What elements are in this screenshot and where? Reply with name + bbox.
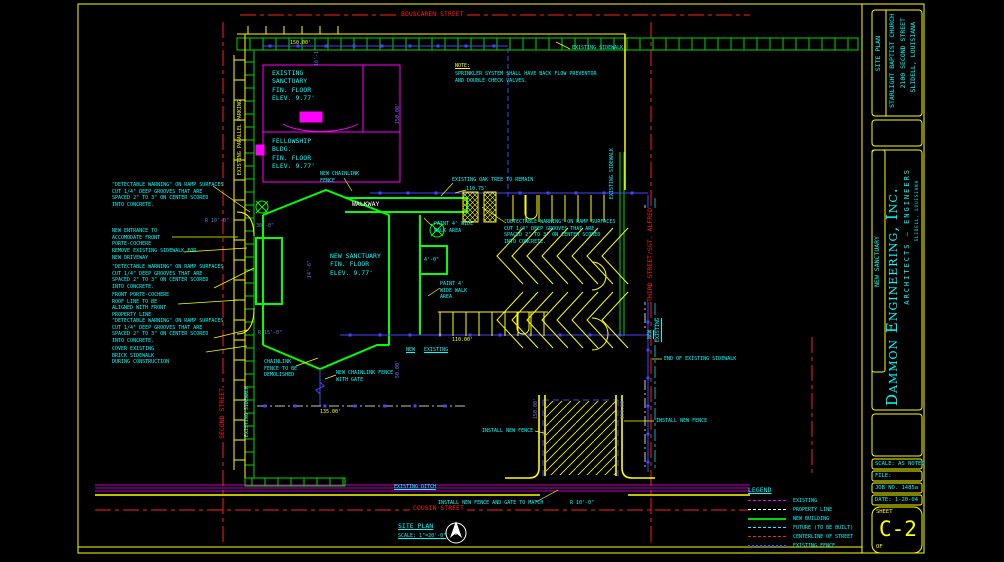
siteplan-scale: SCALE: 1"=20'-0": [398, 533, 446, 540]
cad-site-plan-sheet: BOUSCAREN STREET SECOND STREET COUSIN ST…: [0, 0, 1004, 562]
dim-14-6: 14'-6": [307, 260, 314, 278]
dim-150-top: 150.00': [290, 40, 311, 47]
titleblock-file: FILE:: [875, 473, 892, 480]
dim-30: 30'-0": [256, 223, 274, 230]
titleblock-firm-address: SLIDELL, LOUISIANA: [914, 180, 919, 241]
legend-title: LEGEND: [748, 486, 853, 494]
titleblock-sheet-number: C-2: [879, 516, 917, 543]
dim-16-1: 16'-1": [314, 48, 321, 66]
callout-detectable-1: "DETECTABLE WARNING" ON RAMP SURFACES CU…: [112, 182, 223, 208]
titleblock-firm-name: Dammon Engineering, Inc.: [883, 152, 903, 406]
dim-135-bottom: 135.00': [320, 409, 341, 416]
label-existing-v: EXISTING: [655, 318, 662, 342]
note-title: NOTE:: [455, 63, 470, 70]
label-new-v: NEW: [647, 330, 654, 339]
callout-remove-sidewalk: REMOVE EXISTING SIDEWALK FOR NEW DRIVEWA…: [112, 248, 196, 261]
legend-item-centerline: CENTERLINE OF STREET: [748, 532, 853, 541]
titleblock-sheet-title: SITE PLAN: [874, 36, 882, 71]
dim-50: 50.00': [395, 360, 402, 378]
callout-front-porte: FRONT PORTE-COCHERE ROOF LINE TO BE ALIG…: [112, 292, 169, 318]
street-label-bouscaren: BOUSCAREN STREET: [398, 10, 467, 18]
callout-end-sidewalk: END OF EXISTING SIDEWALK: [664, 356, 736, 363]
label-existing-h: EXISTING: [424, 347, 448, 354]
callout-install-fence-right: INSTALL NEW FENCE: [656, 418, 707, 425]
legend-item-property-line: PROPERTY LINE: [748, 505, 853, 514]
callout-new-chainlink-fence: NEW CHAINLINK FENCE: [320, 171, 359, 184]
existing-sanctuary-label: EXISTING SANCTUARY FIN. FLOOR ELEV. 9.77…: [272, 69, 315, 103]
callout-existing-sidewalk-left: EXISTING SIDEWALK: [244, 386, 251, 437]
dim-r10-entry: R 10'-0": [205, 218, 229, 225]
callout-oak-tree: EXISTING OAK TREE TO REMAIN: [452, 177, 533, 184]
walkway-label: WALKWAY: [352, 200, 379, 208]
titleblock-project-name: NEW SANCTUARY: [873, 236, 881, 287]
titleblock-firm-sub: ARCHITECTS — ENGINEERS: [903, 168, 912, 305]
dim-4-0: 4'-0": [424, 257, 439, 264]
legend-swatch-new-building: [748, 518, 786, 520]
callout-existing-ditch: EXISTING DITCH: [394, 484, 436, 491]
callout-cover-brick: COVER EXISTING BRICK SIDEWALK DURING CON…: [112, 346, 169, 366]
callout-existing-sidewalk-top: EXISTING SIDEWALK: [572, 45, 623, 52]
legend-swatch-existing: [748, 500, 786, 501]
legend-item-existing-fence: EXISTING FENCE: [748, 541, 853, 550]
dim-driveway-left: 150.00': [533, 398, 540, 419]
dim-r15: R 15'-0": [258, 330, 282, 337]
titleblock-date: DATE: 1-20-04: [875, 497, 918, 504]
callout-paint-walk-2: PAINT 4' WIDE WALK AREA: [440, 281, 467, 301]
siteplan-title: SITE PLAN: [398, 522, 433, 530]
callout-detectable-2: "DETECTABLE WARNING" ON RAMP SURFACES CU…: [112, 264, 223, 290]
dim-110: 110.00': [452, 337, 473, 344]
new-sanctuary-label: NEW SANCTUARY FIN. FLOOR ELEV. 9.77': [330, 252, 381, 277]
callout-existing-sidewalk-right: EXISTING SIDEWALK: [609, 148, 616, 199]
dim-oak: 110.75': [466, 186, 487, 193]
legend-item-future: FUTURE (TO BE BUILT): [748, 523, 853, 532]
legend: LEGEND EXISTING PROPERTY LINE NEW BUILDI…: [748, 486, 853, 550]
titleblock-job: JOB NO. 1485a: [875, 485, 918, 492]
callout-install-fence-gate: INSTALL NEW FENCE AND GATE TO MATCH: [438, 500, 543, 507]
callout-chainlink-demolish: CHAINLINK FENCE TO BE DEMOLISHED: [264, 359, 297, 379]
dim-r10-gate: R 10'-0": [570, 500, 594, 507]
callout-detectable-right: "DETECTABLE WARNING" ON RAMP SURFACES CU…: [504, 219, 615, 245]
callout-install-fence-left: INSTALL NEW FENCE: [482, 428, 533, 435]
legend-swatch-existing-fence: [748, 545, 786, 547]
callout-new-chainlink-gate: NEW CHAINLINK FENCE WITH GATE: [336, 370, 393, 383]
dim-driveway-right: 150.00': [620, 398, 627, 419]
callout-new-entrance: NEW ENTRANCE TO ACCOMODATE FRONT PORTE-C…: [112, 228, 160, 248]
note-body: SPRINKLER SYSTEM SHALL HAVE BACK FLOW PR…: [455, 71, 596, 84]
legend-swatch-future: [748, 527, 786, 528]
legend-item-existing: EXISTING: [748, 496, 853, 505]
callout-parallel-parking: EXISTING PARALLEL PARKING: [237, 100, 244, 175]
legend-item-new-building: NEW BUILDING: [748, 514, 853, 523]
titleblock-scale: SCALE: AS NOTED: [875, 461, 925, 468]
titleblock-project-line3: SLIDELL, LOUISIANA: [909, 22, 917, 92]
new-building: [256, 190, 467, 369]
dim-150-right: 150.00': [395, 103, 402, 124]
titleblock-of-word: OF: [876, 544, 883, 551]
street-label-third: THIRD STREET/SGT. ALFRED: [643, 208, 657, 302]
label-new-h: NEW: [406, 347, 415, 354]
fellowship-label: FELLOWSHIP BLDG. FIN. FLOOR ELEV. 9.77': [272, 137, 315, 171]
north-letter: N: [453, 529, 457, 537]
titleblock-project-line1: STARLIGHT BAPTIST CHURCH: [888, 14, 896, 108]
callout-paint-walk-1: PAINT 4' WIDE WALK AREA: [434, 221, 473, 234]
legend-swatch-centerline: [748, 536, 786, 537]
callout-detectable-3: "DETECTABLE WARNING" ON RAMP SURFACES CU…: [112, 318, 223, 344]
titleblock-project-line2: 2100 SECOND STREET: [899, 18, 907, 88]
street-label-second: SECOND STREET: [215, 388, 229, 439]
legend-swatch-property-line: [748, 509, 786, 510]
